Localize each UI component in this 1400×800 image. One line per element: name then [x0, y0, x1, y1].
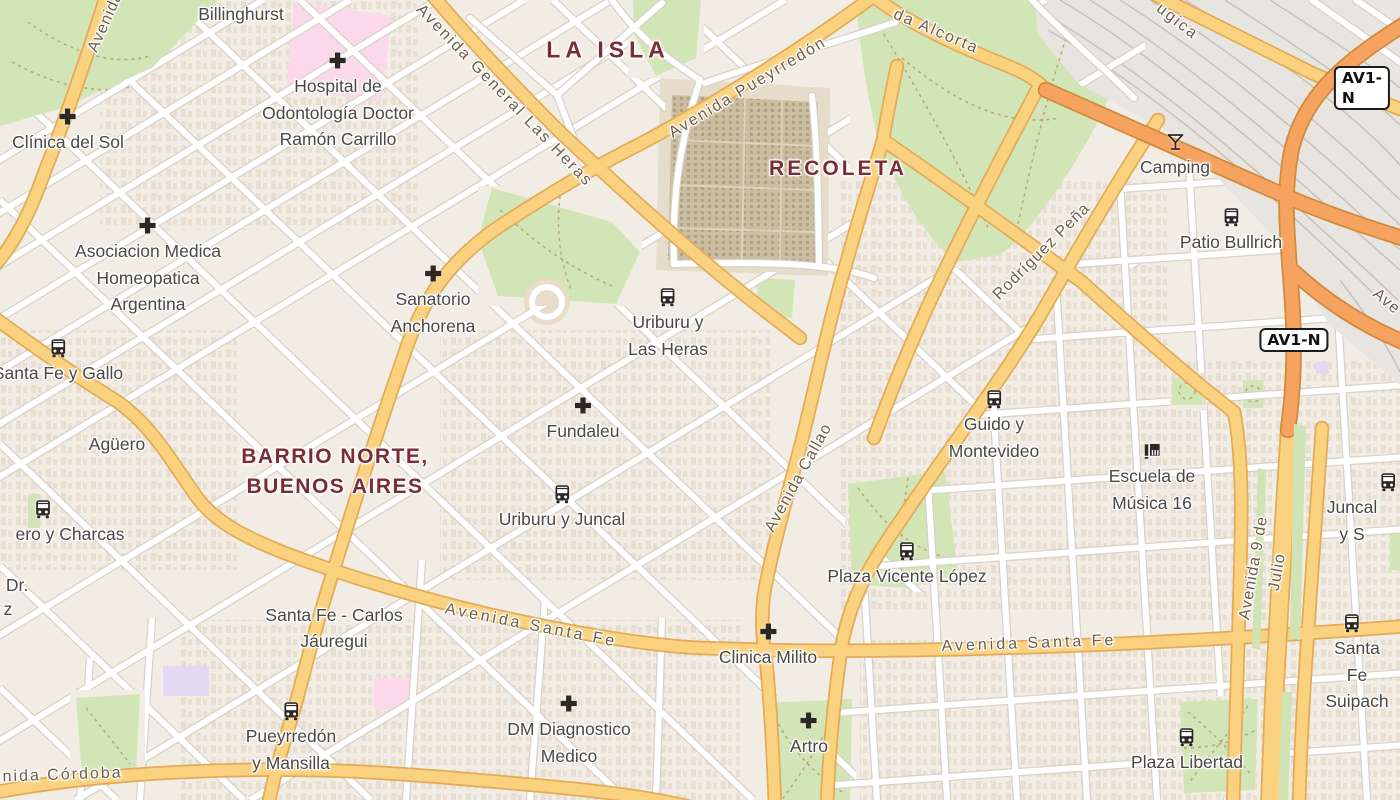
road-label: Avenida General Las Heras: [410, 0, 598, 193]
poi-label-text: z: [4, 596, 13, 623]
hospital-icon: [559, 693, 580, 714]
bus-icon: [551, 483, 572, 504]
poi-label: Guido y Montevideo: [949, 388, 1039, 464]
poi-label: Plaza Libertad: [1131, 726, 1243, 776]
poi-label-text: Plaza Libertad: [1131, 749, 1243, 776]
poi-label: z: [4, 596, 13, 623]
poi-label: Plaza Vicente López: [827, 540, 986, 590]
area-label: RECOLETA: [769, 154, 907, 184]
hospital-icon: [758, 621, 779, 642]
poi-label: Uriburu y Juncal: [499, 483, 625, 533]
poi-label: Camping: [1140, 131, 1210, 181]
road-label: da Alcorta: [889, 3, 982, 61]
bus-icon: [1342, 612, 1363, 633]
poi-label-text: Artro: [790, 733, 828, 760]
hospital-icon: [572, 395, 593, 416]
poi-label: Artro: [790, 710, 828, 760]
bus-icon: [1176, 726, 1197, 747]
road-label: ugica: [1151, 0, 1204, 46]
road-label: Avenida Callao: [759, 419, 839, 537]
poi-label-text: Guido y Montevideo: [949, 411, 1039, 464]
poi-label-text: Dr.: [6, 572, 28, 599]
hospital-icon: [327, 50, 348, 71]
poi-label: DM Diagnostico Medico: [507, 693, 631, 769]
poi-label: Escuela de Música 16: [1109, 440, 1196, 516]
road-label: Avenida Santa Fe: [941, 629, 1117, 659]
bus-icon: [657, 286, 678, 307]
poi-label-text: Fundaleu: [547, 418, 620, 445]
bus-icon: [33, 498, 54, 519]
poi-label: ero y Charcas: [16, 498, 125, 548]
poi-label-text: Escuela de Música 16: [1109, 463, 1196, 516]
poi-label: Uriburu y Las Heras: [628, 286, 708, 362]
poi-label: Dr.: [6, 572, 28, 599]
bus-icon: [280, 700, 301, 721]
poi-label-text: Santa Fe y Gallo: [0, 360, 123, 387]
bus-icon: [1378, 471, 1399, 492]
poi-label-text: Uriburu y Juncal: [499, 506, 625, 533]
route-shield-badge: AV1-N: [1259, 328, 1328, 352]
bus-icon: [1220, 206, 1241, 227]
poi-label-text: Juncal y S: [1327, 494, 1378, 547]
street-label: Santa Fe - Carlos Jáuregui: [265, 602, 402, 655]
bus-icon: [983, 388, 1004, 409]
hospital-icon: [799, 710, 820, 731]
poi-label-text: Hospital de Odontología Doctor Ramón Car…: [262, 73, 414, 153]
poi-label-text: Uriburu y Las Heras: [628, 309, 708, 362]
hospital-icon: [423, 263, 444, 284]
road-label: Rodríguez Peña: [988, 198, 1097, 307]
poi-label-text: ero y Charcas: [16, 521, 125, 548]
poi-label: Asociacion Medica Homeopatica Argentina: [75, 215, 221, 318]
piano-icon: [1142, 440, 1163, 461]
road-label: Avenida Santa Fe: [443, 598, 619, 655]
road-label: Avenida Pueyrredón: [664, 31, 831, 145]
poi-label: Pueyrredón y Mansilla: [246, 700, 336, 776]
route-shield-badge: AV1-N: [1334, 66, 1390, 110]
bus-icon: [47, 337, 68, 358]
road-label: Avenida: [82, 0, 130, 56]
area-label: BARRIO NORTE, BUENOS AIRES: [241, 442, 429, 502]
road-label: Avenida Córdoba: [0, 761, 123, 790]
poi-label: Santa Fe y Gallo: [0, 337, 123, 387]
poi-label-text: Patio Bullrich: [1180, 229, 1282, 256]
poi-label: Hospital de Odontología Doctor Ramón Car…: [262, 50, 414, 153]
bus-icon: [897, 540, 918, 561]
bar-icon: [1164, 131, 1185, 152]
poi-label: Santa Fe Suipach: [1325, 612, 1388, 715]
poi-label-text: Asociacion Medica Homeopatica Argentina: [75, 238, 221, 318]
area-label: LA ISLA: [546, 34, 670, 67]
map-viewport[interactable]: LA ISLARECOLETABARRIO NORTE, BUENOS AIRE…: [0, 0, 1400, 800]
poi-label-text: Clinica Milito: [719, 644, 817, 671]
street-label: Billinghurst: [198, 1, 284, 27]
poi-label: Clínica del Sol: [12, 106, 124, 156]
poi-label: Fundaleu: [547, 395, 620, 445]
poi-label-text: Santa Fe Suipach: [1325, 635, 1388, 715]
map-labels: LA ISLARECOLETABARRIO NORTE, BUENOS AIRE…: [0, 0, 1400, 800]
poi-label: Clinica Milito: [719, 621, 817, 671]
poi-label-text: Plaza Vicente López: [827, 563, 986, 590]
poi-label: Patio Bullrich: [1180, 206, 1282, 256]
street-label: Agüero: [89, 431, 145, 457]
poi-label-text: Clínica del Sol: [12, 129, 124, 156]
hospital-icon: [58, 106, 79, 127]
road-label: Ave: [1367, 283, 1400, 321]
poi-label: Juncal y S: [1327, 471, 1378, 547]
poi-label-text: Pueyrredón y Mansilla: [246, 723, 336, 776]
poi-label: Sanatorio Anchorena: [391, 263, 476, 339]
poi-label-text: Sanatorio Anchorena: [391, 286, 476, 339]
hospital-icon: [138, 215, 159, 236]
poi-label-text: DM Diagnostico Medico: [507, 716, 631, 769]
road-label: Avenida 9 de Julio: [1231, 500, 1302, 640]
poi-label-text: Camping: [1140, 154, 1210, 181]
